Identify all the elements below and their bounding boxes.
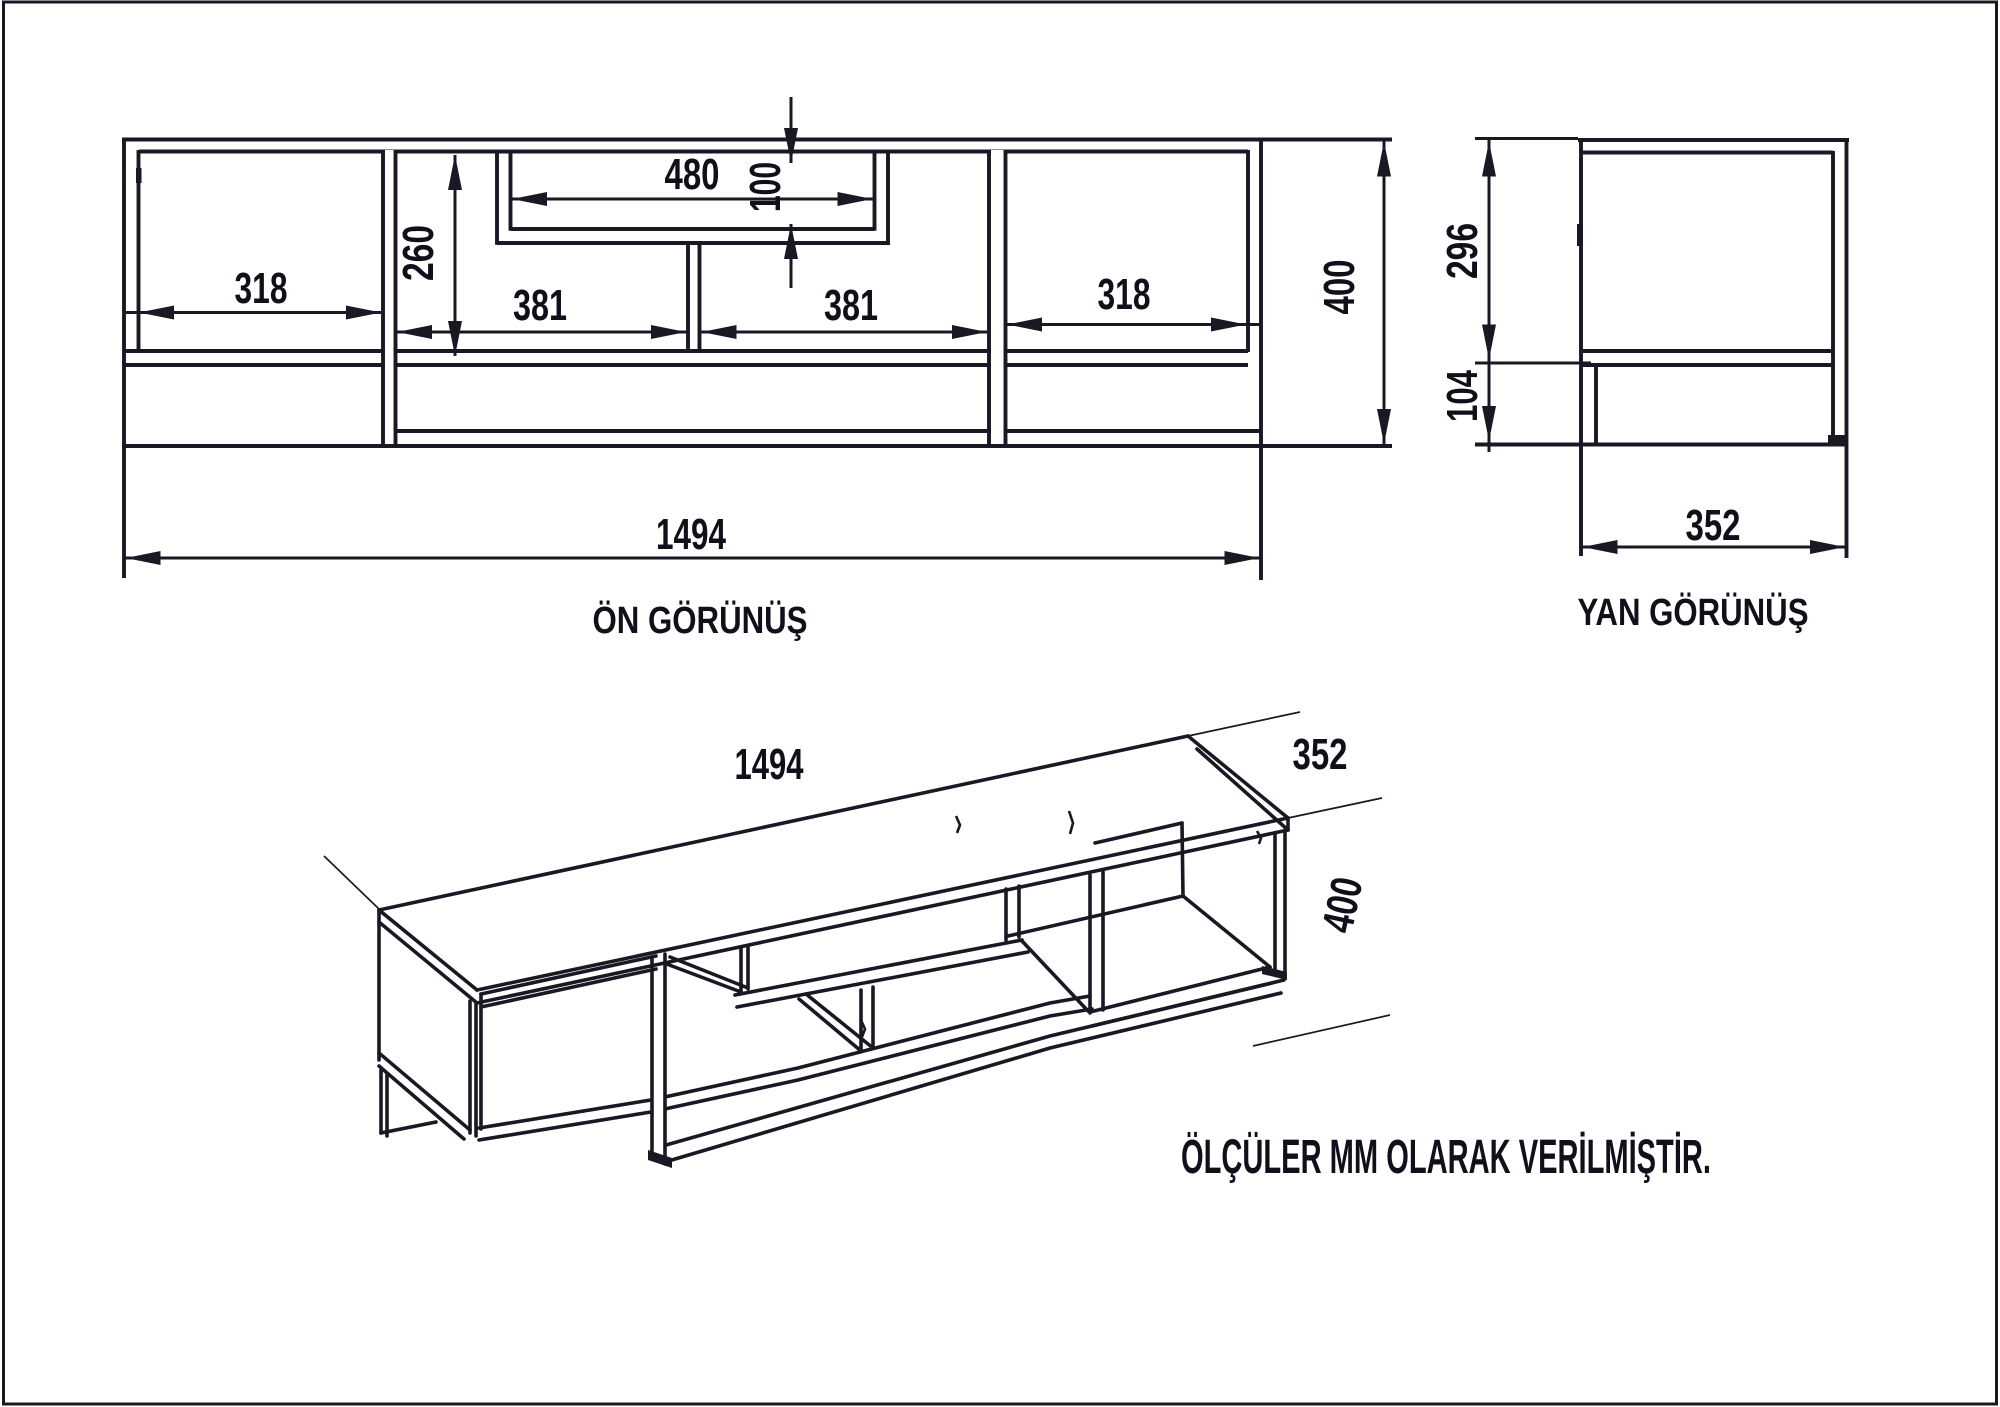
svg-text:381: 381 [824,281,878,330]
svg-text:296: 296 [1438,223,1487,279]
svg-text:260: 260 [394,225,443,281]
svg-text:480: 480 [665,150,720,199]
svg-text:1494: 1494 [735,740,804,789]
svg-text:318: 318 [235,264,288,313]
svg-text:YAN GÖRÜNÜŞ: YAN GÖRÜNÜŞ [1578,591,1809,634]
svg-text:ÖN GÖRÜNÜŞ: ÖN GÖRÜNÜŞ [593,599,808,642]
svg-text:318: 318 [1098,270,1151,319]
svg-text:400: 400 [1315,260,1364,315]
svg-text:1494: 1494 [656,510,726,559]
svg-text:381: 381 [513,281,567,330]
svg-text:ÖLÇÜLER MM OLARAK VERİLMİŞTİR.: ÖLÇÜLER MM OLARAK VERİLMİŞTİR. [1181,1131,1711,1184]
svg-text:352: 352 [1293,730,1348,779]
svg-text:352: 352 [1686,501,1741,550]
svg-text:100: 100 [741,162,790,212]
svg-text:104: 104 [1438,370,1487,422]
